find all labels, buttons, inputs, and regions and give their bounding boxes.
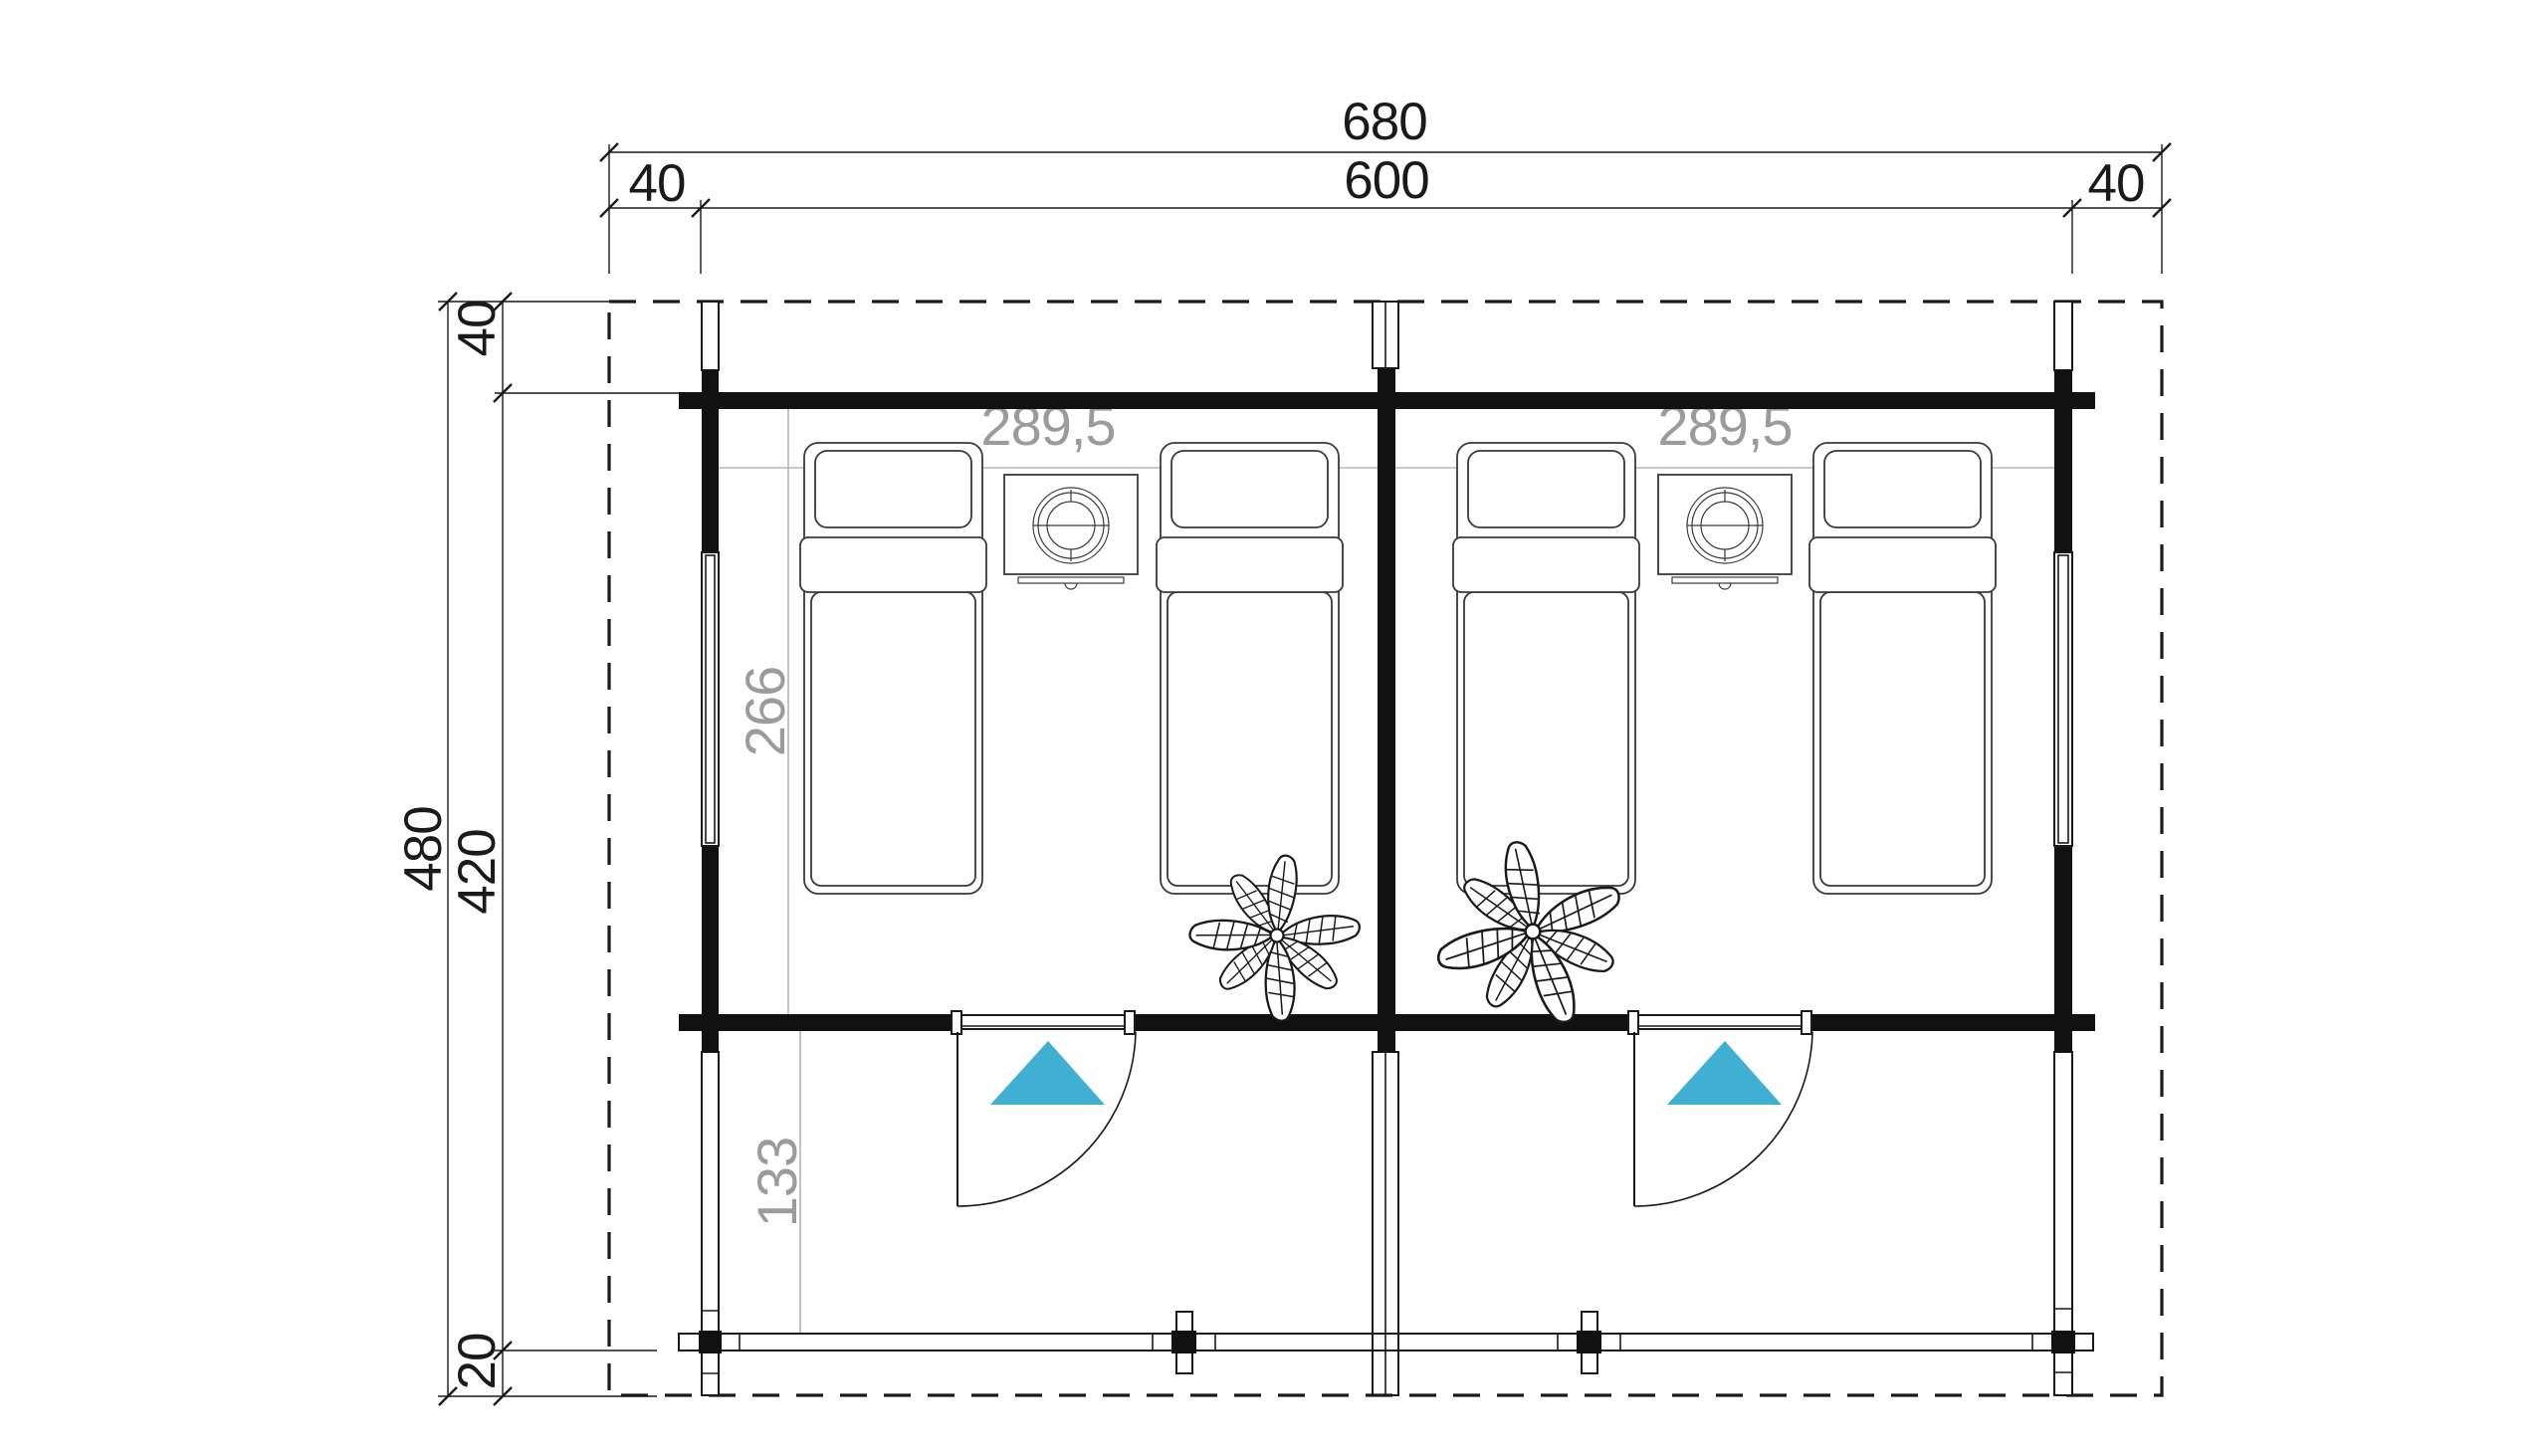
deck-post-left-mid-black xyxy=(1171,1331,1196,1353)
wall-left-lower xyxy=(702,846,719,1052)
wall-bottom-left-segment xyxy=(679,1014,952,1031)
bed-room2-right xyxy=(1809,443,1996,894)
bed-room1-left xyxy=(800,443,986,894)
wall-right-lower xyxy=(2054,846,2072,1052)
bed-room2-left xyxy=(1453,443,1639,894)
stove-table-room1 xyxy=(1004,475,1138,589)
wall-bottom-right-segment xyxy=(1811,1014,2095,1031)
wall-right-upper xyxy=(2054,370,2072,552)
dim-inner-depth: 420 xyxy=(448,829,507,914)
deck-post-left-black xyxy=(699,1331,722,1353)
door-right xyxy=(1628,1011,1812,1206)
dim-margin-top: 40 xyxy=(448,301,507,357)
deck-post-right-black xyxy=(2051,1331,2075,1353)
wall-middle xyxy=(1378,368,1395,1052)
dim-margin-left: 40 xyxy=(629,154,686,213)
stove-table-room2 xyxy=(1658,475,1792,589)
dim-inner-width: 600 xyxy=(1344,151,1428,210)
dim-room-interior-depth: 266 xyxy=(734,667,796,756)
floor-plan-drawing: 680 600 40 40 480 40 420 20 289,5 289,5 … xyxy=(0,0,2548,1456)
dimension-top: 680 600 40 40 xyxy=(600,93,2171,274)
wall-left-upper xyxy=(702,370,719,552)
window-left xyxy=(702,552,719,846)
dim-overall-depth: 480 xyxy=(394,806,453,891)
dimension-left: 480 40 420 20 xyxy=(394,293,679,1405)
deck-post-right-mid-black xyxy=(1577,1331,1601,1353)
dim-margin-right: 40 xyxy=(2088,154,2145,213)
door-left xyxy=(952,1011,1136,1206)
post-top-middle xyxy=(1373,302,1398,368)
bed-room1-right xyxy=(1157,443,1343,894)
post-top-right xyxy=(2054,302,2072,370)
dim-margin-bottom: 20 xyxy=(448,1334,507,1390)
floor-plan-canvas: 680 600 40 40 480 40 420 20 289,5 289,5 … xyxy=(0,0,2548,1456)
window-right xyxy=(2054,552,2072,846)
dim-overall-width: 680 xyxy=(1342,93,1426,151)
post-top-left xyxy=(702,302,719,370)
dim-veranda-depth: 133 xyxy=(745,1138,808,1227)
